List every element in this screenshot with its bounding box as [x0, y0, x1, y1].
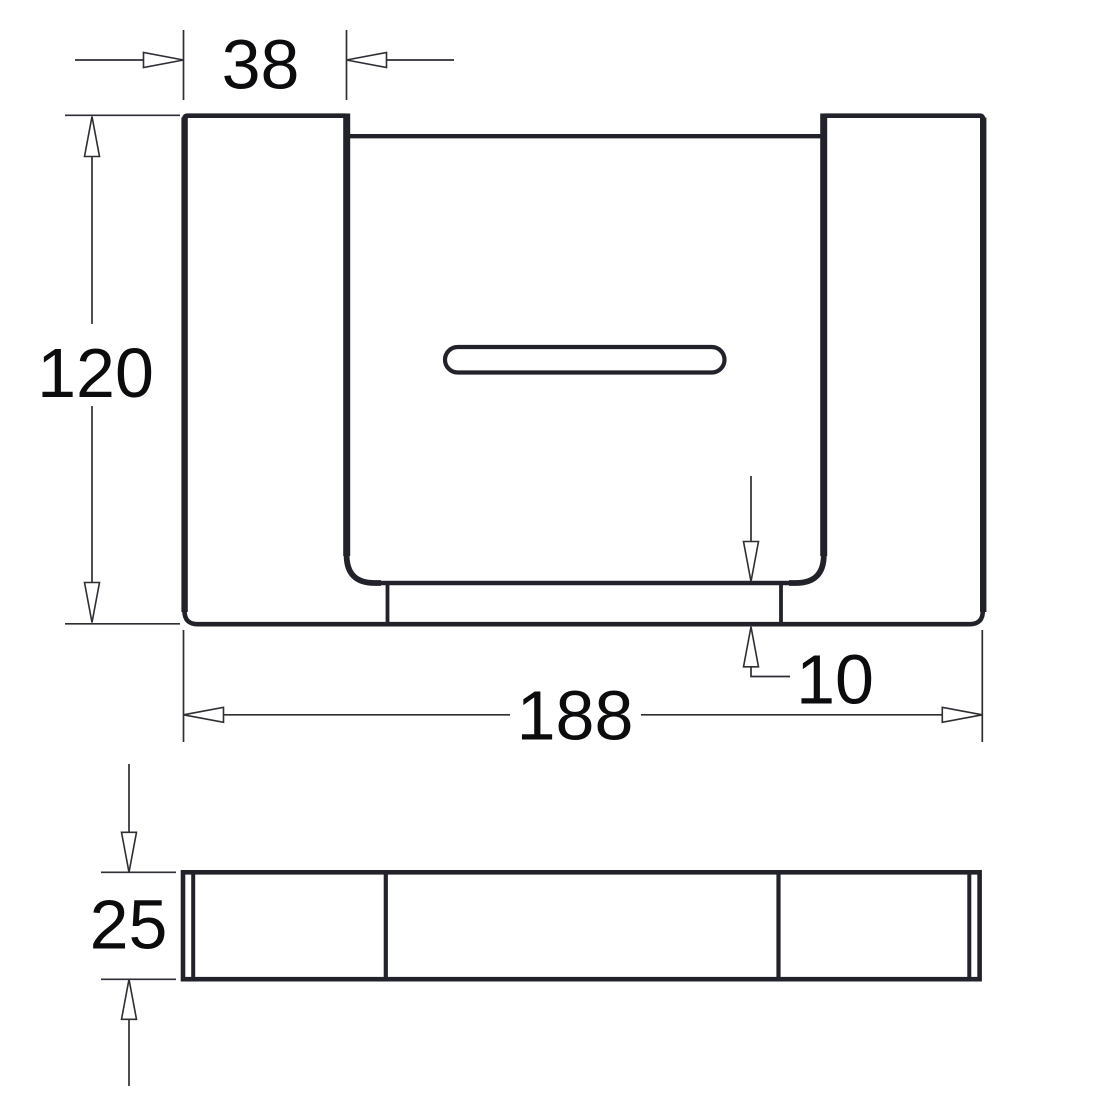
- svg-text:10: 10: [796, 641, 874, 719]
- svg-text:188: 188: [517, 677, 634, 755]
- svg-text:120: 120: [37, 334, 154, 412]
- svg-text:25: 25: [90, 886, 168, 964]
- svg-text:38: 38: [222, 26, 300, 104]
